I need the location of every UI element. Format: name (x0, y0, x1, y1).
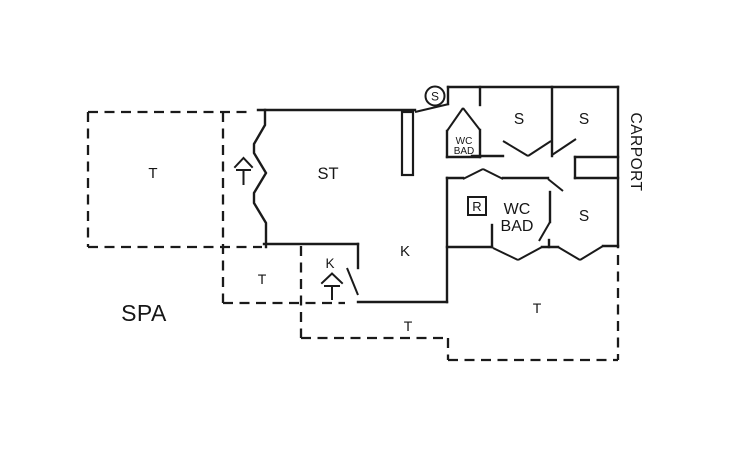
terrace-door-leaf (558, 247, 580, 260)
kitchen-walls (347, 178, 447, 302)
entry-area (402, 104, 449, 175)
label-kitchen: K (400, 243, 410, 260)
entrance-s-letter: S (431, 90, 439, 104)
wc-bath-1-door-leaf (463, 108, 480, 130)
label-carport: CARPORT (627, 112, 644, 191)
corridor-walls (472, 139, 576, 156)
floor-plan: S R T ST S S CARPORT WC BAD WC BAD S K K… (0, 0, 730, 450)
entrance-s-circle: S (426, 87, 445, 106)
r-box-letter: R (472, 199, 481, 214)
kitchen-door-leaf (347, 268, 358, 295)
label-wc-bath-2-bad: BAD (501, 218, 534, 235)
label-living-room: ST (317, 165, 338, 183)
carport-closet (575, 157, 618, 178)
label-terrace-small: T (258, 271, 267, 287)
label-wc-bath-1-bad: BAD (454, 146, 475, 157)
floor-plan-drawing: S R T ST S S CARPORT WC BAD WC BAD S K K… (0, 0, 730, 450)
terrace-door-leaf (493, 248, 518, 260)
label-kitchen-door: K (325, 256, 334, 271)
entry-wall-pier (402, 112, 413, 175)
r-box-symbol: R (468, 197, 486, 215)
terrace-arrow-kitchen (322, 274, 342, 300)
bedroom-3-door-leaf (548, 179, 563, 191)
label-wc-bath-2-wc: WC (504, 201, 531, 218)
label-terrace-south-east: T (533, 300, 542, 316)
folding-door (254, 110, 266, 247)
terrace-west-outline (88, 112, 262, 303)
wc-bath-1-door-leaf (447, 108, 463, 131)
label-spa: SPA (121, 300, 167, 326)
bedroom-2-door-leaf (552, 139, 576, 155)
label-terrace-west: T (148, 165, 157, 182)
terrace-door-leaf (580, 246, 603, 260)
terrace-arrow-west (235, 158, 252, 184)
label-bedroom-1: S (514, 111, 524, 128)
wc-bath-2-door-leaf (483, 169, 503, 179)
terrace-door-leaf (518, 247, 542, 260)
bedroom-1-door-leaf (503, 141, 528, 156)
bedroom-1-door-leaf (528, 141, 551, 156)
label-terrace-south-mid: T (404, 318, 413, 334)
ensuite-door-leaf (539, 222, 550, 241)
wc-bath-2-door-leaf (463, 169, 483, 179)
label-bedroom-2: S (579, 111, 589, 128)
label-bedroom-3: S (579, 208, 589, 225)
